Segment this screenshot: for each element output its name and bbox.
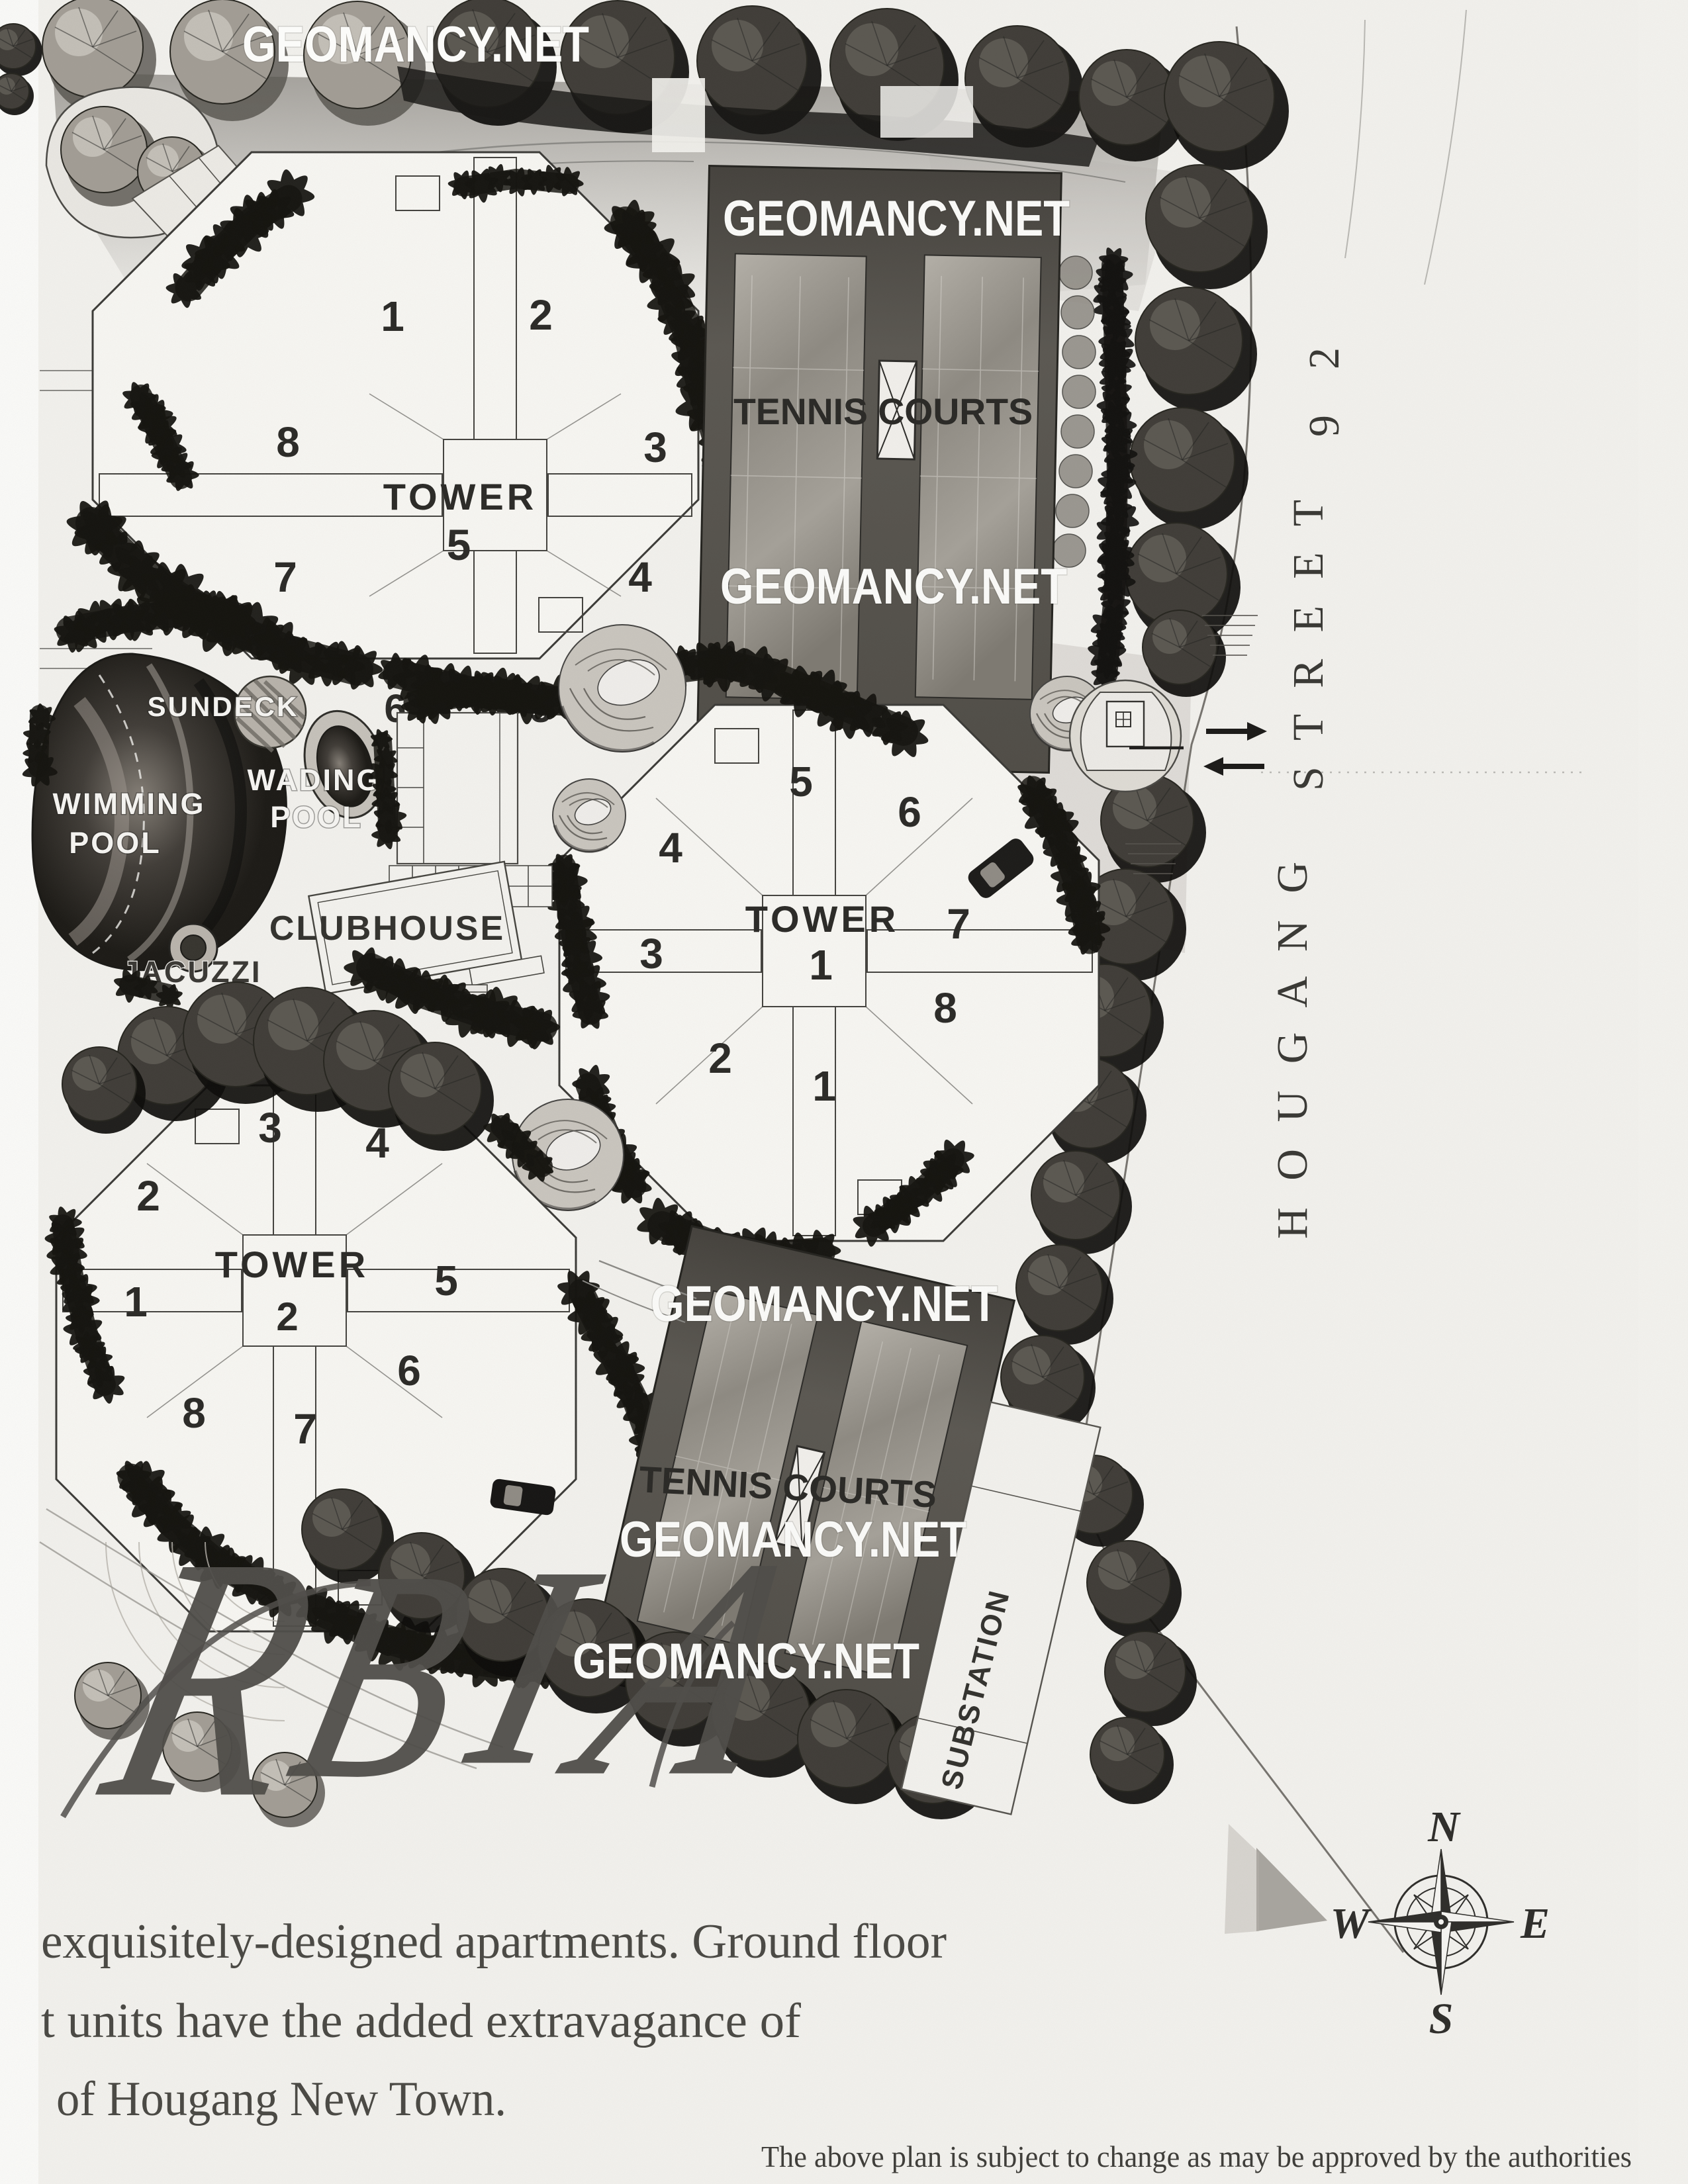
svg-text:GEOMANCY.NET: GEOMANCY.NET [242, 17, 589, 73]
